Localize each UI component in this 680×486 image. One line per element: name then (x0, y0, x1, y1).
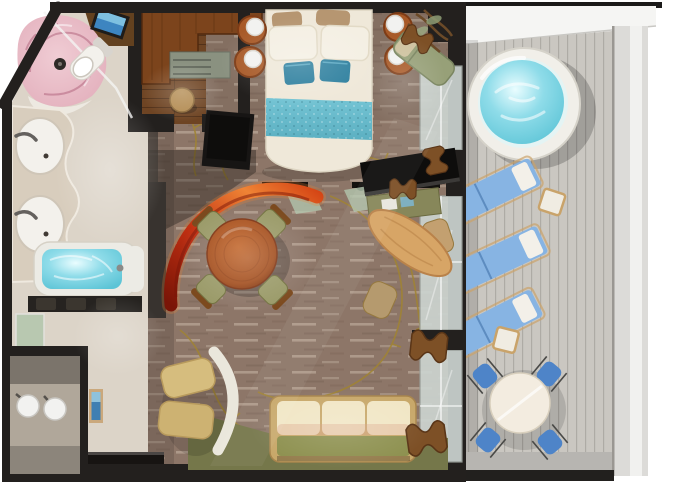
framed-artwork (89, 389, 103, 423)
railing-inner-edge (612, 26, 615, 476)
tv-screen (206, 114, 250, 161)
floor-plan-rendering (0, 0, 680, 486)
entry-shadow (10, 356, 80, 384)
bathtub-faucet (117, 265, 124, 272)
balcony-bottom-wall (460, 470, 614, 481)
deck-concrete-strip (466, 452, 612, 472)
light-glow (250, 388, 430, 468)
side-table (493, 327, 520, 354)
sink-drain (44, 232, 49, 237)
light-glow (178, 203, 318, 313)
light-glow (362, 36, 446, 128)
light-glow (220, 17, 380, 107)
entry-shadow (10, 446, 80, 474)
light-glow (73, 296, 163, 376)
tv-cabinet (202, 110, 255, 170)
bathtub-deck (126, 246, 144, 292)
railing-highlight (630, 26, 642, 476)
towel (36, 298, 56, 310)
wall-lamp (17, 395, 39, 417)
wall-lamp (44, 398, 66, 420)
towel (66, 298, 86, 310)
side-table (538, 188, 566, 216)
console-top-edge (88, 452, 164, 455)
balcony (440, 2, 662, 481)
light-glow (55, 95, 165, 245)
sink-drain (44, 154, 49, 159)
armchair-cushion (157, 400, 214, 439)
nightstand-lamp (387, 16, 404, 33)
side-table-top (493, 327, 520, 354)
artwork-highlight (92, 392, 101, 402)
light-glow (142, 62, 222, 122)
shower-drain-cap (58, 62, 62, 66)
floor-plan (0, 0, 680, 486)
left-wall (2, 96, 12, 350)
top-wall (50, 2, 466, 13)
side-table-top (538, 188, 566, 216)
